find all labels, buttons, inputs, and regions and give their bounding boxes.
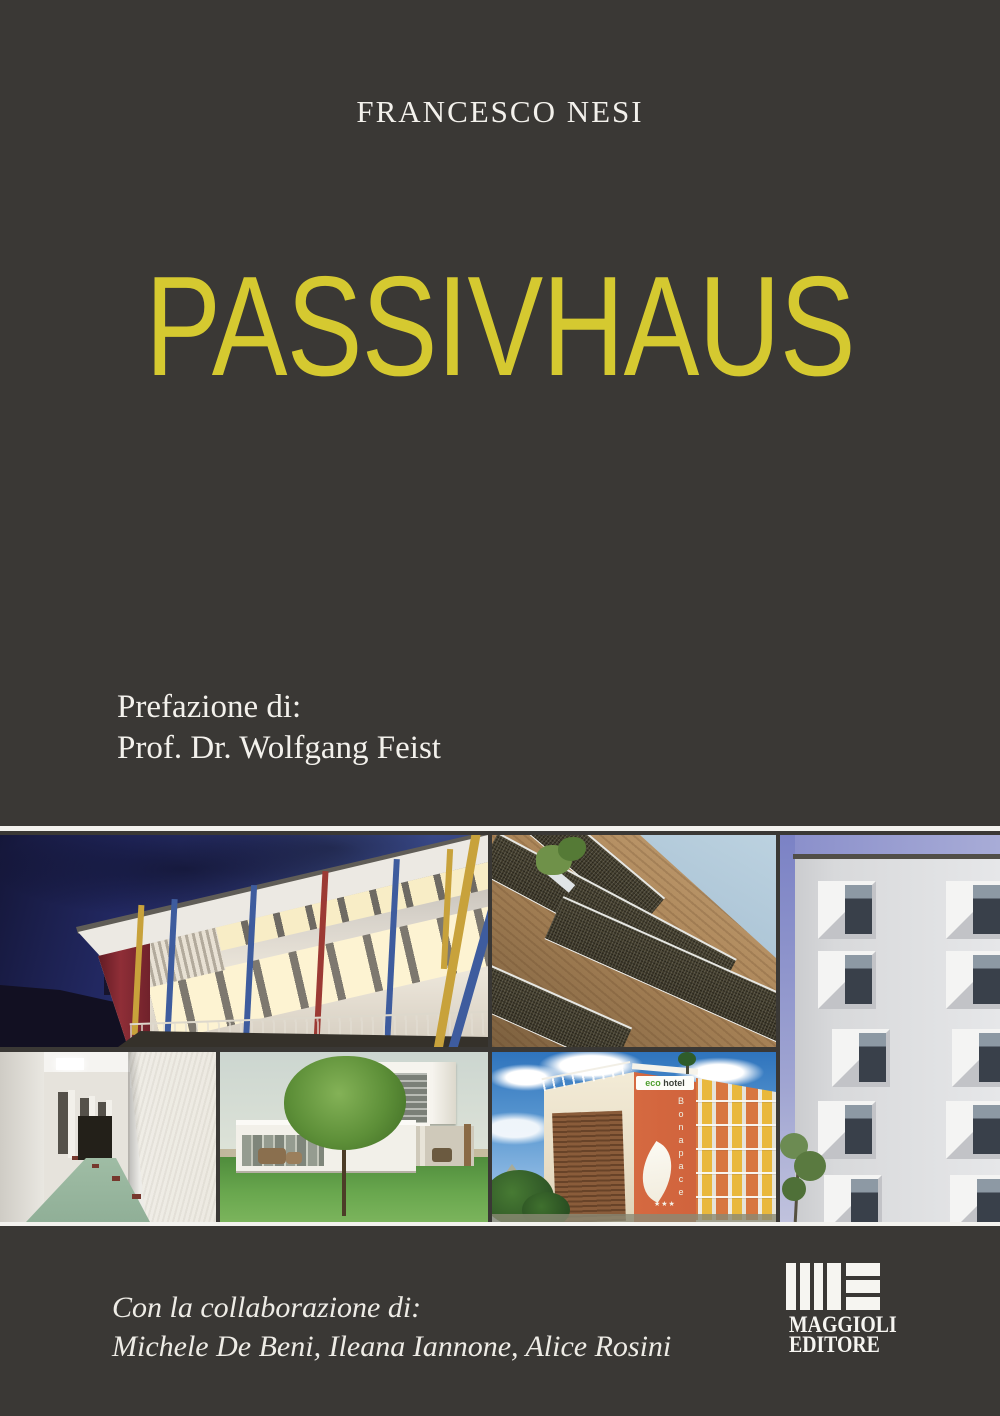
- photo-eco-hotel: eco hotel Bonapace ★★★: [492, 1052, 776, 1222]
- collaboration-names: Michele De Beni, Ileana Iannone, Alice R…: [112, 1327, 671, 1366]
- corridor-skylight: [56, 1058, 84, 1070]
- bonapace-vertical-sign: Bonapace: [676, 1096, 686, 1200]
- sky-strip-left: [780, 835, 795, 1222]
- window-glass: [977, 1179, 1000, 1222]
- sky-strip-top: [795, 835, 1000, 855]
- preface-label: Prefazione di:: [117, 687, 441, 728]
- photo-passive-house: [220, 1052, 488, 1222]
- corridor-left-wall: [0, 1052, 44, 1222]
- patio-furniture: [432, 1148, 452, 1162]
- tree-canopy: [284, 1056, 406, 1150]
- tree-foliage: [782, 1177, 806, 1201]
- skirting-mark: [112, 1176, 120, 1181]
- montage-top-divider: [0, 826, 1000, 831]
- square-window: [832, 1029, 890, 1087]
- hotel-stars: ★★★: [654, 1200, 676, 1208]
- square-window: [824, 1175, 882, 1222]
- photo-corridor: [0, 1052, 216, 1222]
- corridor-dark-end: [78, 1116, 112, 1160]
- publisher-type: EDITORE: [789, 1335, 875, 1355]
- skirting-mark: [72, 1156, 78, 1160]
- skirting-mark: [92, 1164, 99, 1168]
- window-glass: [845, 885, 872, 934]
- photo-school-dusk: [0, 835, 488, 1047]
- window-glass: [973, 1105, 1000, 1154]
- patio-furniture: [286, 1152, 302, 1164]
- mark-e-bars: [846, 1263, 880, 1310]
- patio-furniture: [258, 1148, 286, 1164]
- mark-bar: [814, 1263, 823, 1310]
- square-window: [818, 881, 876, 939]
- book-cover: FRANCESCO NESI PASSIVHAUS Prefazione di:…: [0, 0, 1000, 1416]
- maggioli-mark-icon: [782, 1263, 880, 1310]
- tree-foliage: [794, 1151, 826, 1181]
- sign-hotel-text: hotel: [663, 1078, 685, 1088]
- mark-bar-wide: [827, 1263, 841, 1310]
- square-window: [946, 881, 1000, 939]
- photo-white-facade: [780, 835, 1000, 1222]
- window-glass: [973, 955, 1000, 1004]
- window-glass: [851, 1179, 878, 1222]
- square-window: [952, 1029, 1000, 1087]
- window-glass: [845, 955, 872, 1004]
- palm-top: [678, 1052, 696, 1066]
- square-window: [946, 951, 1000, 1009]
- sign-eco-text: eco: [645, 1078, 661, 1088]
- photo-wood-facade: [492, 835, 776, 1047]
- wall-pillar: [68, 1090, 75, 1158]
- mark-bar: [786, 1263, 796, 1310]
- door-opening: [58, 1092, 68, 1154]
- square-window: [950, 1175, 1000, 1222]
- preface-author: Prof. Dr. Wolfgang Feist: [117, 728, 441, 769]
- tree-trunk: [342, 1142, 346, 1216]
- square-window: [946, 1101, 1000, 1159]
- collaboration-label: Con la collaborazione di:: [112, 1288, 671, 1327]
- window-glass: [973, 885, 1000, 934]
- skirting-mark: [132, 1194, 141, 1199]
- author-name: FRANCESCO NESI: [0, 94, 1000, 130]
- book-title: PASSIVHAUS: [100, 256, 900, 398]
- preface-block: Prefazione di: Prof. Dr. Wolfgang Feist: [117, 687, 441, 769]
- roof-edge: [793, 854, 1000, 859]
- publisher-logo: MAGGIOLI EDITORE: [782, 1263, 882, 1355]
- square-window: [818, 951, 876, 1009]
- collaboration-block: Con la collaborazione di: Michele De Ben…: [112, 1288, 671, 1366]
- window-glass: [979, 1033, 1000, 1082]
- mark-bar: [800, 1263, 810, 1310]
- porch-wood-pillar: [464, 1124, 471, 1166]
- eco-hotel-sign: eco hotel: [636, 1076, 694, 1090]
- window-glass: [845, 1105, 872, 1154]
- montage-bottom-divider: [0, 1222, 1000, 1226]
- ground-strip: [492, 1214, 776, 1222]
- window-glass: [859, 1033, 886, 1082]
- square-window: [818, 1101, 876, 1159]
- porch-post: [420, 1126, 425, 1166]
